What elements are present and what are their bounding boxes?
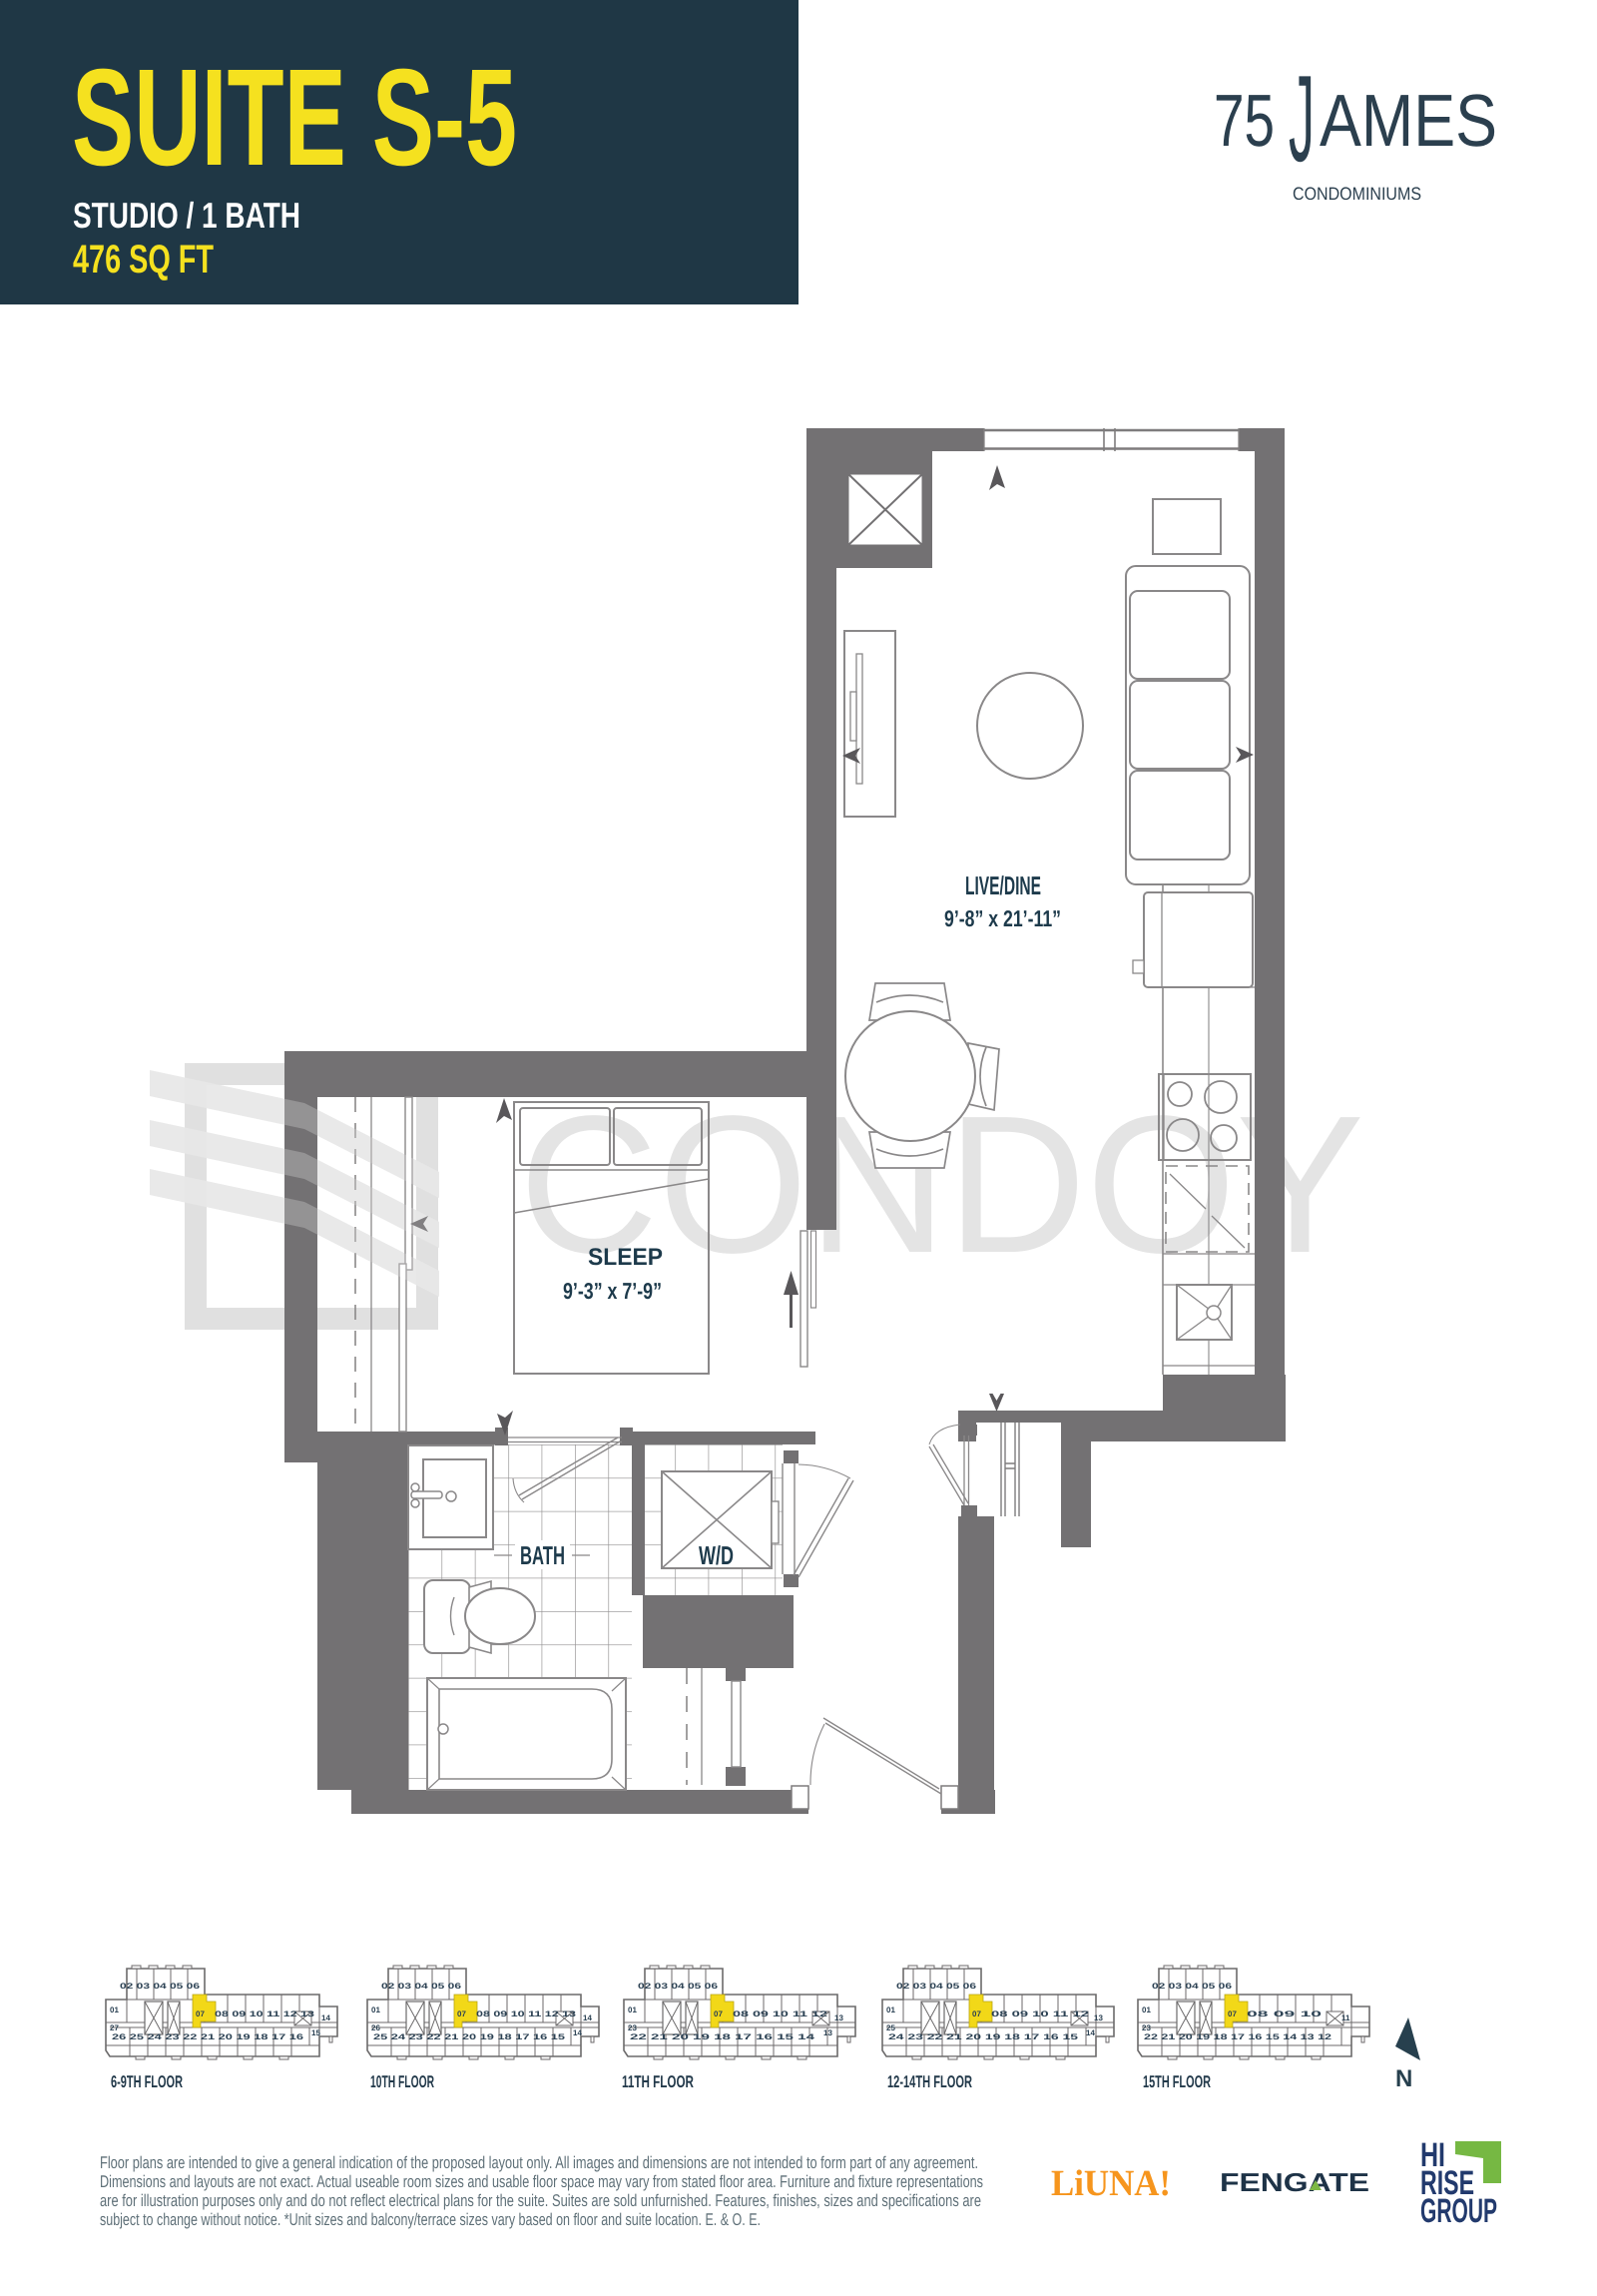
svg-text:08 09 10 11 12: 08 09 10 11 12 [733, 2009, 828, 2018]
svg-text:14: 14 [573, 2028, 582, 2037]
svg-text:07: 07 [972, 2009, 981, 2018]
svg-text:02 03 04 05 06: 02 03 04 05 06 [381, 1982, 462, 1991]
svg-text:9’-8” x 21’-11”: 9’-8” x 21’-11” [944, 905, 1061, 931]
svg-text:26 25 24 23 22 21 20 19 18 17: 26 25 24 23 22 21 20 19 18 17 16 [112, 2032, 304, 2041]
svg-text:subject to change without noti: subject to change without notice. *Unit … [100, 2210, 761, 2229]
svg-text:CONDOMINIUMS: CONDOMINIUMS [1293, 184, 1421, 204]
svg-text:08 09 10 11 12: 08 09 10 11 12 [991, 2009, 1090, 2018]
svg-text:W/D: W/D [699, 1540, 734, 1570]
svg-text:are for illustration purposes: are for illustration purposes only and d… [100, 2191, 981, 2210]
svg-text:22 21 20 19 18 17 16 15 14 13: 22 21 20 19 18 17 16 15 14 13 12 [1144, 2032, 1332, 2041]
svg-text:08 09 10: 08 09 10 [1247, 2009, 1323, 2018]
svg-text:25: 25 [886, 2023, 895, 2032]
svg-text:14: 14 [1086, 2028, 1095, 2037]
svg-text:STUDIO / 1 BATH: STUDIO / 1 BATH [73, 195, 300, 236]
svg-text:02 03 04 05 06: 02 03 04 05 06 [638, 1982, 719, 1991]
svg-text:SUITE S-5: SUITE S-5 [72, 41, 517, 195]
svg-text:26: 26 [371, 2023, 380, 2032]
svg-text:15TH FLOOR: 15TH FLOOR [1143, 2072, 1211, 2091]
svg-text:LiUNA!: LiUNA! [1051, 2163, 1171, 2204]
svg-text:13: 13 [834, 2013, 843, 2022]
svg-text:SLEEP: SLEEP [588, 1244, 663, 1271]
svg-text:Floor plans are intended to gi: Floor plans are intended to give a gener… [100, 2153, 978, 2172]
svg-text:07: 07 [196, 2009, 205, 2018]
svg-text:23: 23 [1142, 2023, 1151, 2032]
svg-text:02 03 04 05 06: 02 03 04 05 06 [120, 1982, 201, 1991]
svg-text:LIVE/DINE: LIVE/DINE [965, 870, 1041, 900]
svg-text:11: 11 [1341, 2013, 1350, 2022]
svg-text:14: 14 [583, 2013, 592, 2022]
svg-text:GROUP: GROUP [1420, 2192, 1497, 2230]
svg-text:12-14TH FLOOR: 12-14TH FLOOR [887, 2072, 972, 2091]
svg-text:01: 01 [371, 2006, 380, 2014]
svg-text:01: 01 [110, 2006, 119, 2014]
svg-text:13: 13 [1094, 2013, 1103, 2022]
svg-text:23: 23 [628, 2023, 637, 2032]
svg-text:24 23 22 21 20 19 18 17 16 15: 24 23 22 21 20 19 18 17 16 15 [888, 2032, 1079, 2041]
svg-text:22 21 20 19 18 17 16 15 14: 22 21 20 19 18 17 16 15 14 [630, 2032, 815, 2041]
svg-text:02 03 04 05 06: 02 03 04 05 06 [1152, 1982, 1233, 1991]
svg-text:6-9TH FLOOR: 6-9TH FLOOR [111, 2072, 183, 2091]
svg-text:Dimensions and layouts are not: Dimensions and layouts are not exact. Ac… [100, 2172, 983, 2191]
svg-text:27: 27 [110, 2023, 119, 2032]
svg-text:9’-3” x 7’-9”: 9’-3” x 7’-9” [563, 1278, 662, 1304]
svg-text:BATH: BATH [520, 1540, 565, 1570]
svg-text:07: 07 [1228, 2009, 1237, 2018]
svg-text:AMES: AMES [1320, 79, 1497, 162]
svg-text:07: 07 [457, 2009, 466, 2018]
svg-text:75: 75 [1214, 79, 1275, 162]
svg-text:01: 01 [886, 2006, 895, 2014]
svg-text:N: N [1395, 2065, 1412, 2092]
svg-text:25 24 23 22 21 20 19 18 17 16: 25 24 23 22 21 20 19 18 17 16 15 [373, 2032, 566, 2041]
svg-text:11TH FLOOR: 11TH FLOOR [622, 2072, 694, 2091]
svg-text:08 09 10 11 12 13: 08 09 10 11 12 13 [215, 2009, 315, 2018]
svg-text:476 SQ FT: 476 SQ FT [73, 238, 214, 282]
svg-text:01: 01 [1142, 2006, 1151, 2014]
svg-text:10TH FLOOR: 10TH FLOOR [370, 2072, 434, 2091]
svg-text:FENGATE: FENGATE [1220, 2167, 1369, 2197]
svg-text:07: 07 [714, 2009, 723, 2018]
svg-text:02 03 04 05 06: 02 03 04 05 06 [896, 1982, 977, 1991]
svg-text:15: 15 [311, 2028, 320, 2037]
svg-text:14: 14 [321, 2013, 330, 2022]
svg-text:01: 01 [628, 2006, 637, 2014]
svg-text:13: 13 [823, 2028, 832, 2037]
svg-text:J: J [1289, 51, 1315, 188]
svg-text:08 09 10 11 12 13: 08 09 10 11 12 13 [476, 2009, 577, 2018]
